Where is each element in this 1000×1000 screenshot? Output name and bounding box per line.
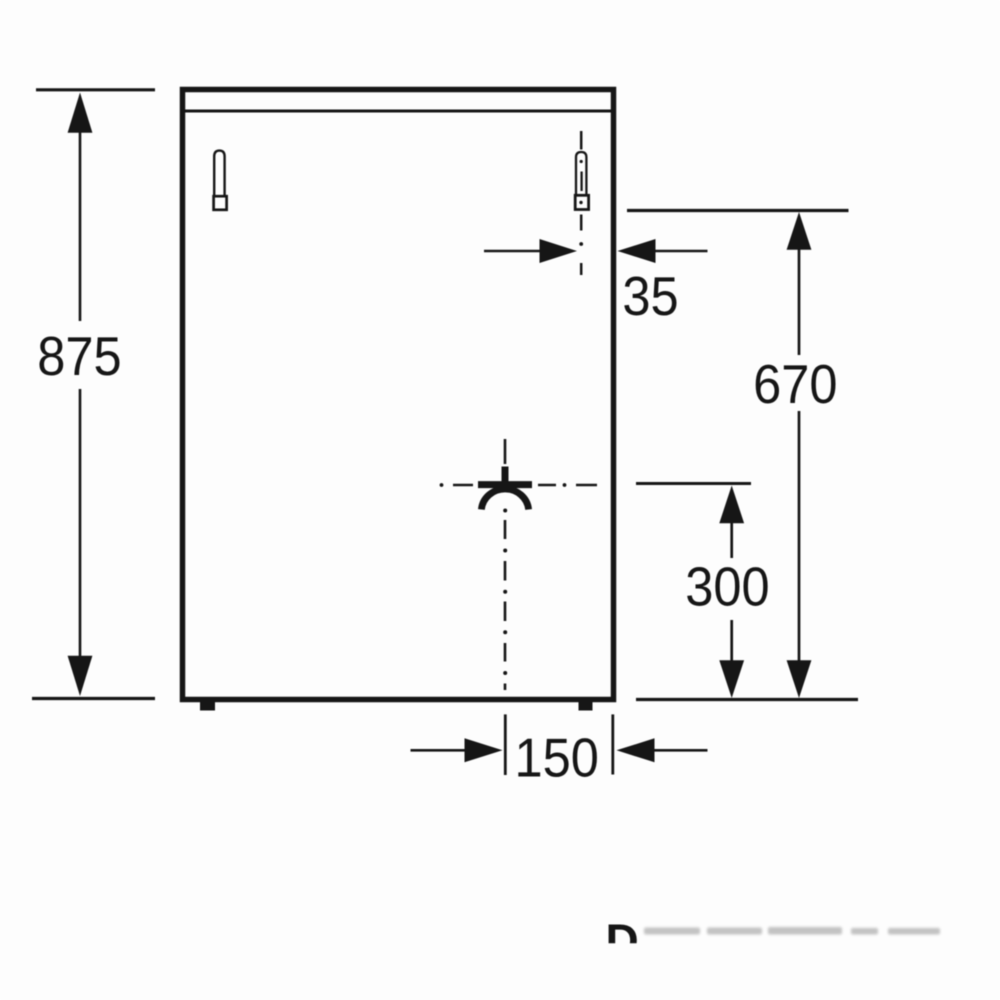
svg-text:300: 300 — [685, 557, 769, 618]
svg-text:875: 875 — [37, 326, 121, 387]
svg-text:670: 670 — [753, 354, 837, 415]
svg-text:35: 35 — [622, 266, 678, 327]
svg-text:150: 150 — [514, 728, 598, 789]
